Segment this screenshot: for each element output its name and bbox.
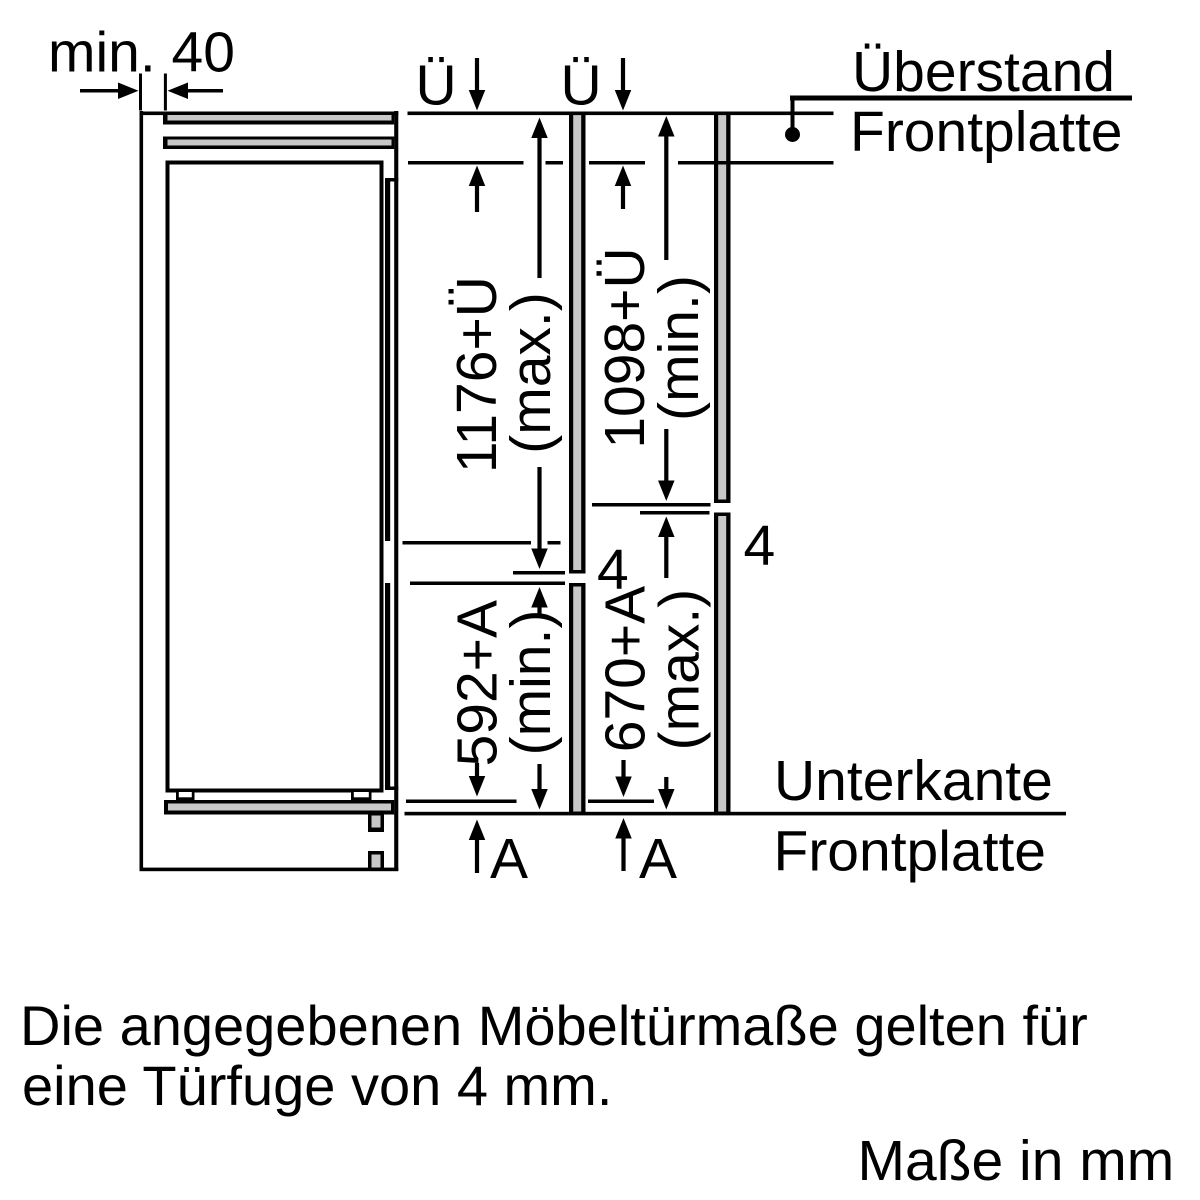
svg-text:(max.): (max.) xyxy=(648,589,712,750)
svg-text:Ü: Ü xyxy=(416,54,457,118)
svg-text:A: A xyxy=(490,827,528,891)
svg-text:min. 40: min. 40 xyxy=(48,21,235,85)
svg-text:Die angegebenen Möbeltürmaße g: Die angegebenen Möbeltürmaße gelten für xyxy=(20,994,1088,1057)
svg-text:eine Türfuge von 4 mm.: eine Türfuge von 4 mm. xyxy=(22,1054,612,1117)
svg-text:Unterkante: Unterkante xyxy=(774,749,1053,813)
svg-text:(min.): (min.) xyxy=(647,275,711,421)
svg-text:(min.): (min.) xyxy=(499,610,563,756)
svg-text:Überstand: Überstand xyxy=(852,40,1115,104)
svg-text:Frontplatte: Frontplatte xyxy=(850,100,1122,164)
svg-text:4: 4 xyxy=(744,514,776,578)
svg-text:Ü: Ü xyxy=(561,54,602,118)
svg-text:Frontplatte: Frontplatte xyxy=(774,820,1046,884)
svg-text:(max.): (max.) xyxy=(499,292,563,453)
svg-text:Maße in mm: Maße in mm xyxy=(858,1129,1175,1193)
svg-text:A: A xyxy=(639,827,677,891)
